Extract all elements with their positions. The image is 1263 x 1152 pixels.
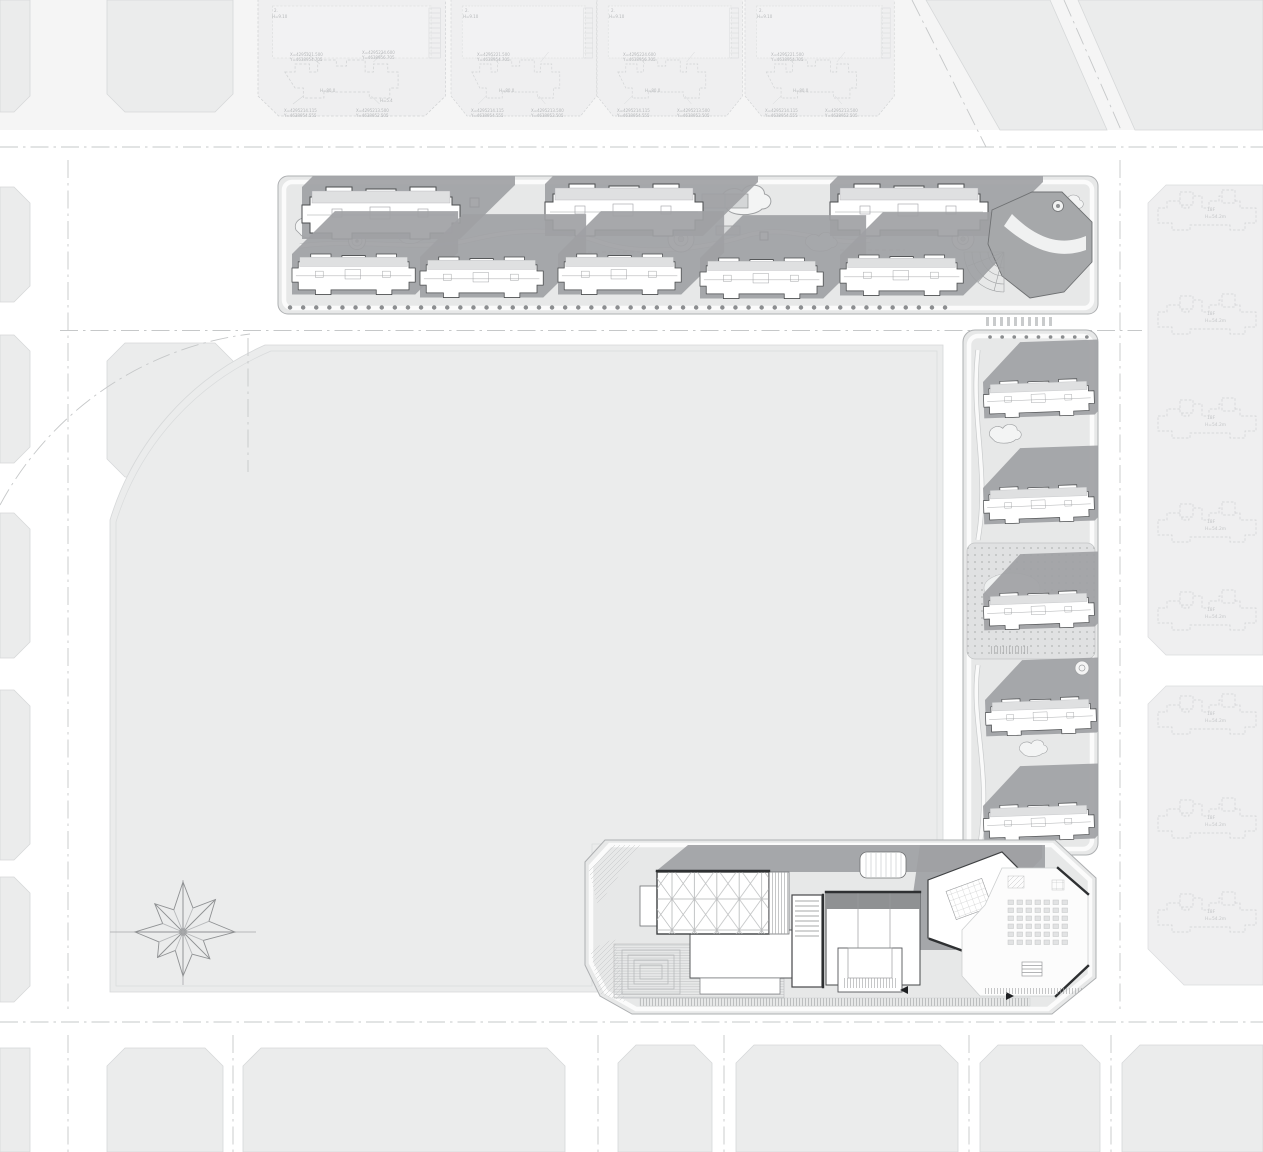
svg-text:Y=4638956.705: Y=4638956.705	[361, 55, 395, 60]
svg-text:H=54.2m: H=54.2m	[1205, 822, 1226, 828]
svg-text:H=54.2m: H=54.2m	[1205, 916, 1226, 922]
svg-text:18F: 18F	[1207, 311, 1216, 317]
adjacent-block-1: 2. H=9.10 X=4295221.500 Y=4638954.705 X=…	[258, 0, 445, 118]
svg-text:H=80.0: H=80.0	[499, 88, 515, 93]
site-plan-canvas: 2. H=9.10 X=4295221.500 Y=4638954.705 X=…	[0, 0, 1263, 1152]
east-residential-strip	[963, 330, 1135, 855]
svg-text:2.: 2.	[611, 8, 615, 13]
svg-text:Y=4638954.555: Y=4638954.555	[470, 113, 504, 118]
svg-text:Y=4638954.705: Y=4638954.705	[476, 57, 510, 62]
svg-text:18F: 18F	[1207, 519, 1216, 525]
svg-text:Y=4638954.705: Y=4638954.705	[770, 57, 804, 62]
north-bottom-row-buildings	[292, 211, 1006, 298]
svg-text:H=80.0: H=80.0	[793, 88, 809, 93]
adjacent-block-2: 2. H=9.10 X=4295221.500 Y=4638954.705 H=…	[451, 0, 597, 118]
svg-text:18F: 18F	[1207, 607, 1216, 613]
svg-text:H=9.10: H=9.10	[272, 14, 288, 19]
svg-text:H=54.2m: H=54.2m	[1205, 526, 1226, 532]
crosswalk	[986, 317, 1052, 326]
svg-text:H=54.2m: H=54.2m	[1205, 718, 1226, 724]
svg-text:18F: 18F	[1207, 207, 1216, 213]
svg-text:18F: 18F	[1207, 415, 1216, 421]
svg-text:H=5.4: H=5.4	[380, 98, 393, 103]
svg-text:Y=4638952.505: Y=4638952.505	[355, 113, 389, 118]
svg-text:H=9.10: H=9.10	[757, 14, 773, 19]
svg-text:Y=4638956.705: Y=4638956.705	[622, 57, 656, 62]
svg-text:2.: 2.	[274, 8, 278, 13]
svg-text:Y=4638954.555: Y=4638954.555	[283, 113, 317, 118]
adjacent-north-blocks: 2. H=9.10 X=4295221.500 Y=4638954.705 X=…	[258, 0, 894, 118]
south-commercial-complex	[585, 840, 1105, 1014]
svg-text:Y=4638952.505: Y=4638952.505	[530, 113, 564, 118]
svg-text:H=54.2m: H=54.2m	[1205, 422, 1226, 428]
svg-text:H=54.2m: H=54.2m	[1205, 214, 1226, 220]
svg-text:18F: 18F	[1207, 711, 1216, 717]
svg-text:2.: 2.	[759, 8, 763, 13]
svg-text:H=80.0: H=80.0	[645, 88, 661, 93]
svg-text:H=80.0: H=80.0	[320, 88, 336, 93]
mid-crosswalk	[990, 646, 1030, 654]
svg-text:H=9.10: H=9.10	[463, 14, 479, 19]
svg-text:H=54.2m: H=54.2m	[1205, 614, 1226, 620]
svg-text:Y=4638952.505: Y=4638952.505	[676, 113, 710, 118]
adjacent-block-3: 2. H=9.10 X=4295224.600 Y=4638956.705 H=…	[597, 0, 743, 118]
stair-tower	[792, 895, 823, 987]
truss-roof-hall	[657, 871, 789, 934]
svg-text:H=54.2m: H=54.2m	[1205, 318, 1226, 324]
adjacent-block-4: 2. H=9.10 X=4295221.500 Y=4638954.705 H=…	[745, 0, 894, 118]
ring-feature-icon	[1075, 661, 1089, 675]
north-residential-strip	[278, 129, 1098, 314]
entry-canopy	[860, 852, 906, 878]
site-plan-svg: 2. H=9.10 X=4295221.500 Y=4638954.705 X=…	[0, 0, 1263, 1152]
svg-text:Y=4638952.505: Y=4638952.505	[824, 113, 858, 118]
stairs-icon	[1022, 962, 1042, 976]
svg-text:18F: 18F	[1207, 909, 1216, 915]
svg-text:18F: 18F	[1207, 815, 1216, 821]
svg-text:H=9.10: H=9.10	[609, 14, 625, 19]
svg-text:Y=4638954.555: Y=4638954.555	[764, 113, 798, 118]
svg-text:Y=4638954.555: Y=4638954.555	[616, 113, 650, 118]
svg-text:Y=4638954.705: Y=4638954.705	[289, 57, 323, 62]
svg-text:2.: 2.	[465, 8, 469, 13]
